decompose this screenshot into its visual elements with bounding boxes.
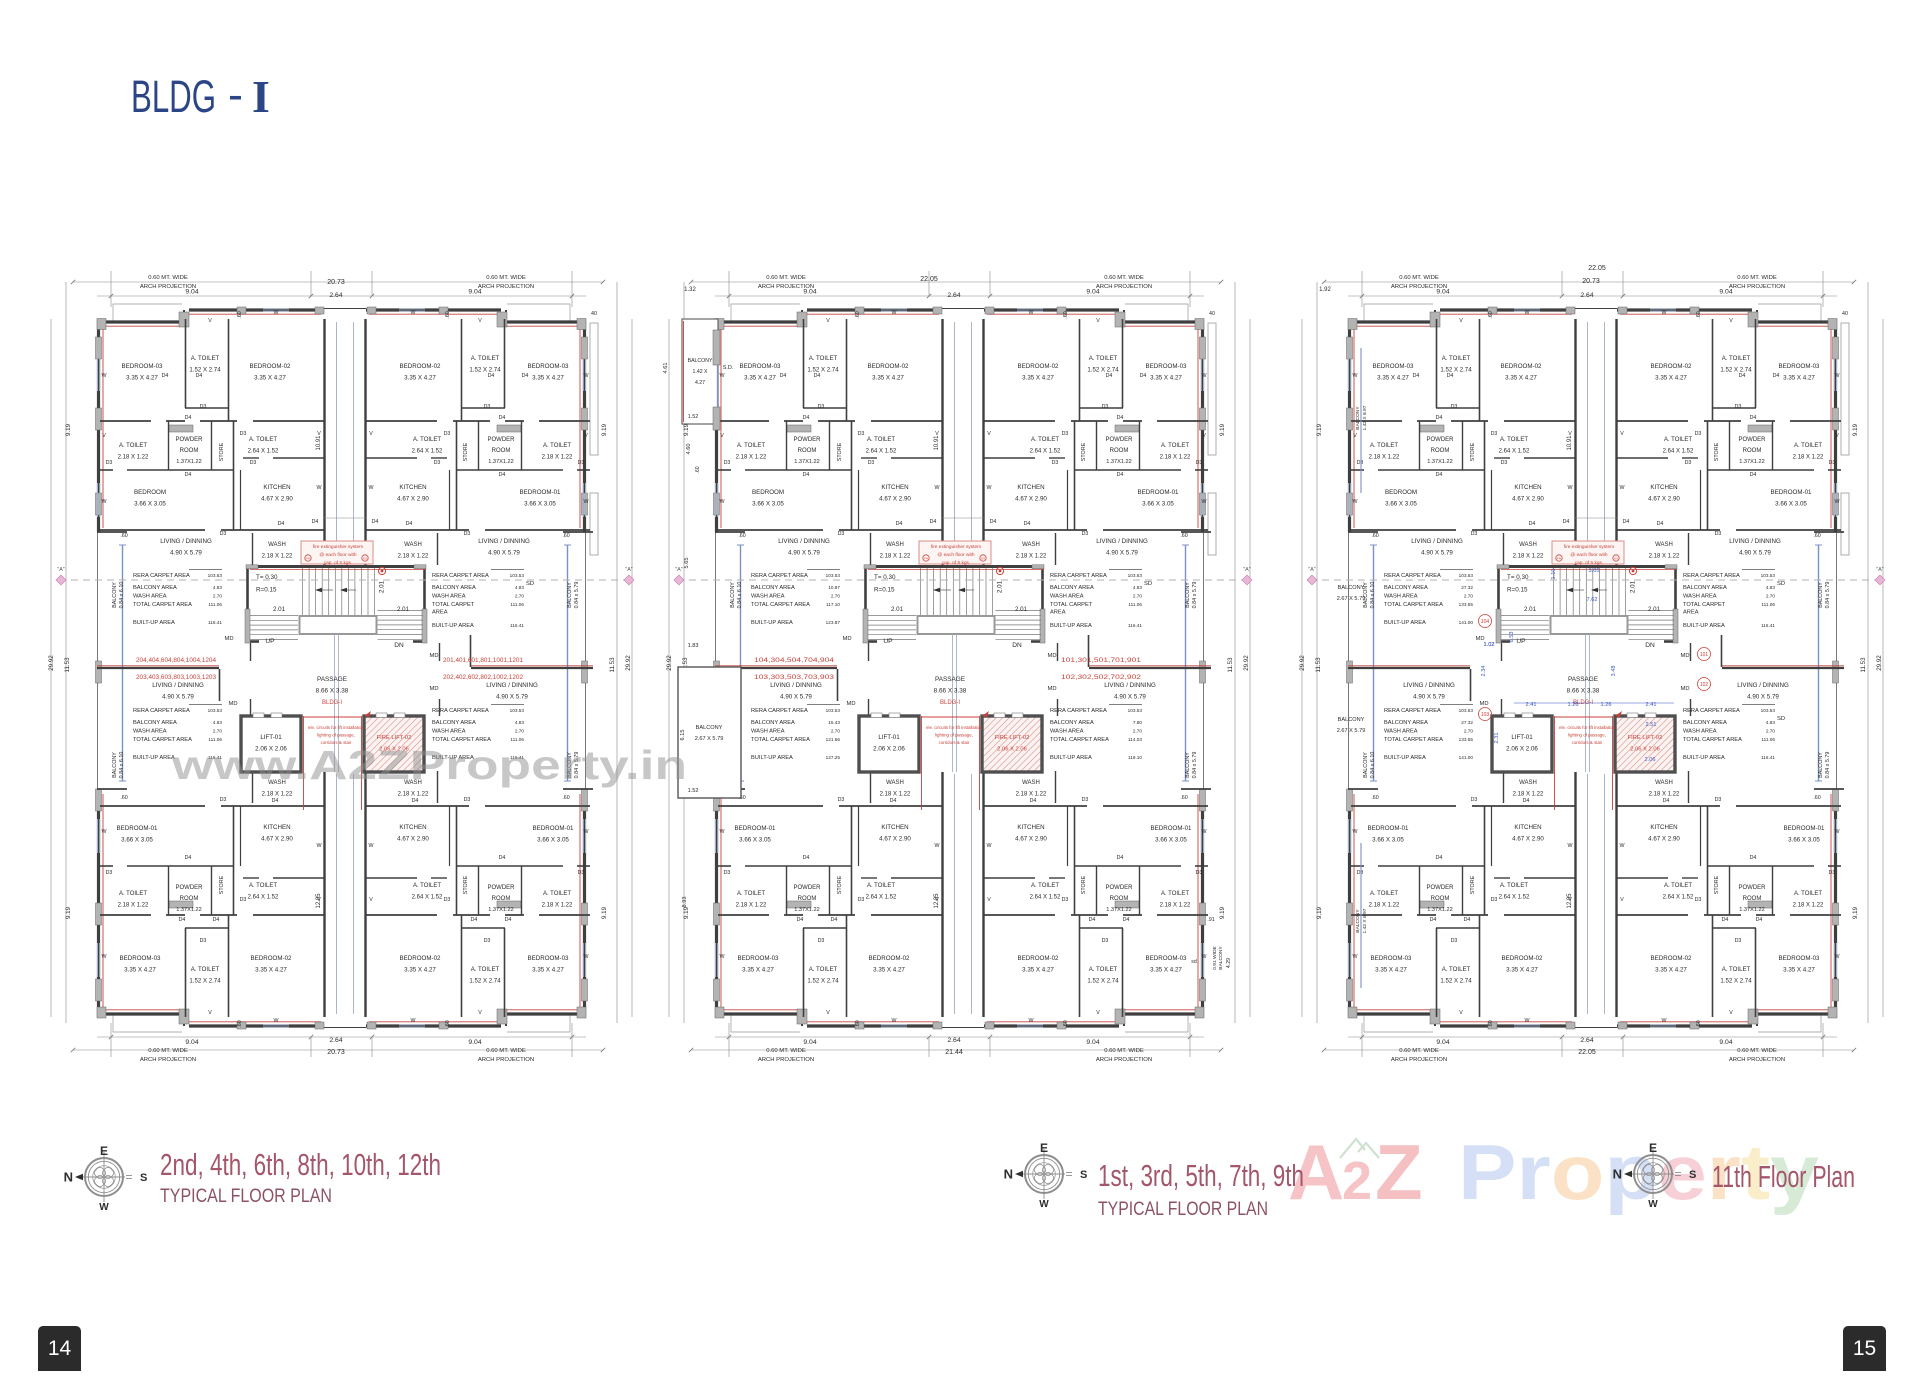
svg-text:S.D.: S.D. [723, 365, 733, 371]
svg-text:BALCONY AREA: BALCONY AREA [133, 585, 177, 591]
svg-text:117.10: 117.10 [826, 602, 840, 607]
svg-text:D3: D3 [240, 897, 247, 903]
svg-text:2.70: 2.70 [1133, 594, 1143, 599]
svg-text:BEDROOM-02: BEDROOM-02 [400, 955, 441, 962]
svg-text:D3: D3 [1829, 460, 1836, 466]
svg-text:A. TOILET: A. TOILET [191, 966, 220, 973]
svg-text:ROOM: ROOM [492, 448, 511, 454]
svg-text:LIVING / DINNING: LIVING / DINNING [1403, 682, 1455, 689]
svg-text:116.41: 116.41 [208, 620, 222, 625]
svg-text:GS: GS [981, 557, 985, 561]
svg-text:1.10: 1.10 [1551, 569, 1557, 580]
svg-text:-: - [228, 69, 243, 120]
svg-text:WASH AREA: WASH AREA [432, 594, 466, 600]
svg-text:ARCH PROJECTION: ARCH PROJECTION [758, 1057, 814, 1063]
svg-text:2.18 X 1.22: 2.18 X 1.22 [736, 455, 767, 461]
svg-text:2.67 X 5.79: 2.67 X 5.79 [695, 736, 724, 742]
svg-text:D3: D3 [1451, 404, 1458, 410]
svg-text:D3: D3 [838, 531, 845, 537]
svg-text:W: W [584, 499, 589, 505]
svg-text:2.06 X 2.06: 2.06 X 2.06 [1630, 747, 1660, 753]
svg-text:V: V [478, 1010, 482, 1016]
svg-text:KITCHEN: KITCHEN [1017, 484, 1044, 491]
svg-text:D3: D3 [200, 404, 207, 410]
svg-text:POWDER: POWDER [794, 437, 822, 443]
svg-text:A. TOILET: A. TOILET [1031, 883, 1059, 889]
svg-text:A. TOILET: A. TOILET [249, 437, 277, 443]
svg-text:3.35 X 4.27: 3.35 X 4.27 [873, 967, 905, 974]
svg-text:0.60 MT. WIDE: 0.60 MT. WIDE [1737, 275, 1777, 281]
svg-text:"A": "A" [625, 567, 632, 573]
svg-text:BEDROOM: BEDROOM [1385, 489, 1417, 496]
svg-text:4.60: 4.60 [686, 444, 692, 455]
svg-text:0.60 MT. WIDE: 0.60 MT. WIDE [148, 1048, 188, 1054]
svg-text:W: W [720, 499, 725, 505]
svg-text:4.90 X 5.79: 4.90 X 5.79 [170, 550, 202, 557]
svg-text:ROOM: ROOM [180, 448, 199, 454]
svg-text:POWDER: POWDER [1739, 437, 1767, 443]
svg-text:2.64 X 1.52: 2.64 X 1.52 [1030, 895, 1061, 901]
svg-text:22.05: 22.05 [920, 276, 938, 283]
svg-text:BLDG-I: BLDG-I [322, 700, 342, 706]
svg-text:A. TOILET: A. TOILET [191, 355, 220, 362]
svg-text:W: W [1620, 843, 1625, 849]
svg-text:W: W [720, 829, 725, 835]
svg-text:A. TOILET: A. TOILET [543, 443, 571, 449]
svg-text:3.35 X 4.27: 3.35 X 4.27 [1506, 967, 1538, 974]
svg-text:1.37X1.22: 1.37X1.22 [488, 459, 514, 465]
svg-text:9.04: 9.04 [1436, 289, 1449, 296]
svg-text:2.64 X 1.52: 2.64 X 1.52 [248, 449, 279, 455]
svg-text:1st, 3rd, 5th, 7th, 9th: 1st, 3rd, 5th, 7th, 9th [1098, 1158, 1304, 1193]
svg-text:TOTAL CARPET: TOTAL CARPET [432, 602, 475, 608]
svg-text:V: V [1568, 897, 1572, 903]
svg-text:1.37X1.22: 1.37X1.22 [176, 459, 202, 465]
svg-text:3.35 X 4.27: 3.35 X 4.27 [1783, 375, 1815, 382]
svg-text:2.70: 2.70 [1133, 729, 1143, 734]
svg-text:WASH AREA: WASH AREA [1683, 729, 1717, 735]
svg-text:SD: SD [1777, 581, 1785, 587]
svg-text:.60: .60 [1813, 533, 1820, 539]
svg-text:WASH: WASH [1655, 542, 1673, 548]
svg-text:W: W [274, 1018, 279, 1024]
svg-text:BEDROOM-02: BEDROOM-02 [869, 955, 910, 962]
svg-text:A. TOILET: A. TOILET [1794, 443, 1822, 449]
svg-text:.60: .60 [1063, 1020, 1069, 1027]
svg-text:STORE: STORE [837, 442, 843, 461]
svg-text:4.67 X 2.90: 4.67 X 2.90 [1015, 836, 1047, 843]
svg-text:.60: .60 [695, 466, 701, 473]
svg-text:BALCONY: BALCONY [567, 582, 573, 608]
svg-text:D4: D4 [1413, 373, 1420, 379]
svg-text:D4: D4 [278, 521, 285, 527]
svg-text:BEDROOM-01: BEDROOM-01 [1151, 825, 1192, 832]
svg-text:2.18 X 1.22: 2.18 X 1.22 [118, 903, 149, 909]
svg-text:D4: D4 [1024, 521, 1031, 527]
svg-text:BALCONY AREA: BALCONY AREA [432, 720, 476, 726]
svg-text:N: N [1613, 1167, 1622, 1182]
svg-text:W: W [317, 485, 322, 491]
svg-text:POWDER: POWDER [794, 885, 822, 891]
svg-text:ele. circuits for lift install: ele. circuits for lift installation [1559, 725, 1615, 730]
svg-text:2.64 X 1.52: 2.64 X 1.52 [1499, 895, 1530, 901]
svg-text:WASH: WASH [886, 542, 904, 548]
svg-text:2.18 X 1.22: 2.18 X 1.22 [262, 554, 293, 560]
svg-text:.60: .60 [1371, 533, 1378, 539]
svg-text:D3: D3 [220, 531, 227, 537]
svg-text:3.35 X 4.27: 3.35 X 4.27 [404, 967, 436, 974]
svg-text:BUILT-UP AREA: BUILT-UP AREA [751, 620, 793, 626]
svg-text:111.06: 111.06 [1761, 602, 1775, 607]
svg-text:1.37X1.22: 1.37X1.22 [1739, 459, 1765, 465]
svg-text:BALCONY: BALCONY [696, 725, 723, 731]
svg-text:2.64: 2.64 [329, 1037, 342, 1044]
svg-text:3.35 X 4.27: 3.35 X 4.27 [254, 375, 286, 382]
svg-text:BEDROOM-03: BEDROOM-03 [1373, 363, 1414, 370]
svg-text:D3: D3 [1491, 431, 1498, 437]
svg-text:3.66 X 3.05: 3.66 X 3.05 [537, 837, 569, 844]
svg-text:BUILT-UP AREA: BUILT-UP AREA [1050, 755, 1092, 761]
svg-text:V: V [935, 897, 939, 903]
svg-text:116.41: 116.41 [510, 623, 524, 628]
svg-text:D4: D4 [162, 373, 169, 379]
svg-text:D3: D3 [1062, 431, 1069, 437]
svg-text:STORE: STORE [1470, 875, 1476, 894]
svg-text:9.04: 9.04 [803, 289, 816, 296]
svg-text:D4: D4 [312, 519, 319, 525]
svg-text:BEDROOM-03: BEDROOM-03 [120, 955, 161, 962]
svg-text:LIFT-01: LIFT-01 [878, 734, 900, 741]
svg-text:9.19: 9.19 [601, 906, 608, 919]
svg-text:4.83: 4.83 [1766, 720, 1776, 725]
svg-text:114.03: 114.03 [1128, 737, 1142, 742]
svg-text:LIVING / DINNING: LIVING / DINNING [478, 538, 530, 545]
svg-text:0.60 MT. WIDE: 0.60 MT. WIDE [486, 1048, 526, 1054]
svg-text:2.18 X 1.22: 2.18 X 1.22 [1513, 554, 1544, 560]
svg-text:103.53: 103.53 [1459, 708, 1474, 713]
svg-text:D3: D3 [1715, 797, 1722, 803]
svg-text:1.42 X 8.97: 1.42 X 8.97 [1362, 405, 1368, 430]
svg-text:2nd, 4th, 6th, 8th, 10th, 12th: 2nd, 4th, 6th, 8th, 10th, 12th [160, 1147, 441, 1182]
svg-text:D3: D3 [578, 870, 585, 876]
svg-text:9.19: 9.19 [1219, 423, 1226, 436]
svg-text:D4: D4 [406, 521, 413, 527]
svg-text:D4: D4 [213, 917, 220, 923]
svg-text:D4: D4 [1089, 917, 1096, 923]
svg-text:ROOM: ROOM [1431, 896, 1450, 902]
svg-text:W: W [892, 1018, 897, 1024]
svg-text:27.32: 27.32 [1461, 585, 1473, 590]
svg-text:A. TOILET: A. TOILET [1664, 437, 1692, 443]
svg-text:LIFT-01: LIFT-01 [1511, 734, 1533, 741]
svg-text:A. TOILET: A. TOILET [413, 437, 441, 443]
svg-text:D4: D4 [412, 798, 419, 804]
svg-text:2.70: 2.70 [1464, 594, 1474, 599]
svg-text:WASH: WASH [1022, 542, 1040, 548]
svg-text:4.67 X 2.90: 4.67 X 2.90 [261, 496, 293, 503]
svg-text:20.73: 20.73 [327, 1049, 345, 1056]
svg-text:9.04: 9.04 [1719, 289, 1732, 296]
svg-text:.60: .60 [562, 795, 569, 801]
svg-text:AREA: AREA [1683, 610, 1699, 616]
svg-text:D4: D4 [1663, 798, 1670, 804]
svg-text:3.35 X 4.27: 3.35 X 4.27 [1505, 375, 1537, 382]
svg-text:MD: MD [1047, 653, 1056, 659]
svg-text:1.52 X 2.74: 1.52 X 2.74 [189, 978, 221, 985]
svg-text:2.18 X 1.22: 2.18 X 1.22 [1649, 792, 1680, 798]
svg-text:S: S [1080, 1169, 1087, 1181]
svg-text:4.61: 4.61 [663, 363, 669, 374]
svg-text:133.55: 133.55 [1459, 737, 1474, 742]
svg-text:203,403,603,803,1003,1203: 203,403,603,803,1003,1203 [136, 674, 217, 681]
svg-text:BALCONY AREA: BALCONY AREA [133, 720, 177, 726]
svg-text:V: V [317, 431, 321, 437]
svg-text:4.90 X 5.79: 4.90 X 5.79 [780, 694, 812, 701]
svg-text:2.01: 2.01 [1524, 606, 1537, 613]
svg-text:BALCONY: BALCONY [1355, 909, 1361, 933]
svg-text:"A": "A" [1308, 567, 1315, 573]
svg-text:103: 103 [1481, 712, 1490, 718]
svg-text:W: W [369, 485, 374, 491]
svg-text:29.92: 29.92 [1299, 655, 1306, 671]
svg-text:141.00: 141.00 [1459, 755, 1474, 760]
svg-text:2.18 X 1.22: 2.18 X 1.22 [1793, 455, 1824, 461]
svg-text:V: V [1096, 318, 1100, 324]
svg-text:W: W [584, 829, 589, 835]
svg-text:1.02: 1.02 [1484, 642, 1495, 648]
svg-text:LIVING / DINNING: LIVING / DINNING [770, 682, 822, 689]
svg-text:D3: D3 [1715, 531, 1722, 537]
svg-text:R=0.15: R=0.15 [256, 587, 277, 594]
svg-text:WASH AREA: WASH AREA [1683, 594, 1717, 600]
svg-text:W: W [1202, 373, 1207, 379]
svg-text:W: W [1202, 829, 1207, 835]
svg-text:2.64: 2.64 [1580, 1037, 1593, 1044]
svg-text:2.18 X 1.22: 2.18 X 1.22 [1369, 455, 1400, 461]
svg-text:D4: D4 [1523, 798, 1530, 804]
svg-text:A. TOILET: A. TOILET [1722, 966, 1751, 973]
svg-text:STORE: STORE [463, 875, 469, 894]
svg-text:W: W [584, 954, 589, 960]
svg-text:2.64: 2.64 [329, 292, 342, 299]
svg-text:8.66 X 3.38: 8.66 X 3.38 [1567, 688, 1600, 695]
svg-text:11.53: 11.53 [64, 657, 71, 673]
svg-text:D3: D3 [818, 404, 825, 410]
svg-text:E: E [1040, 1141, 1048, 1155]
svg-text:D3: D3 [1102, 938, 1109, 944]
svg-text:3.05: 3.05 [1589, 568, 1600, 574]
svg-text:W: W [892, 310, 897, 316]
svg-text:S: S [140, 1172, 147, 1184]
svg-text:1.52: 1.52 [688, 414, 699, 420]
svg-text:2.18 X 1.22: 2.18 X 1.22 [398, 554, 429, 560]
svg-text:DN: DN [1012, 642, 1022, 649]
svg-text:103.53: 103.53 [208, 573, 223, 578]
svg-text:1.52 X 2.74: 1.52 X 2.74 [469, 978, 501, 985]
svg-text:2.70: 2.70 [1766, 729, 1776, 734]
svg-text:V: V [584, 433, 588, 439]
svg-text:ROOM: ROOM [798, 896, 817, 902]
svg-text:W: W [1568, 843, 1573, 849]
svg-text:0.84 x 6.10: 0.84 x 6.10 [1370, 752, 1376, 779]
svg-text:.60: .60 [1813, 795, 1820, 801]
svg-text:2.18 X 1.22: 2.18 X 1.22 [118, 455, 149, 461]
svg-text:A. TOILET: A. TOILET [413, 883, 441, 889]
svg-text:201,401,601,801,1001,1201: 201,401,601,801,1001,1201 [443, 657, 524, 664]
svg-text:3.35 X 4.27: 3.35 X 4.27 [744, 375, 776, 382]
svg-text:D4: D4 [814, 373, 821, 379]
svg-text:.60: .60 [445, 1020, 451, 1027]
svg-text:3.35 X 4.27: 3.35 X 4.27 [1022, 967, 1054, 974]
svg-text:BUILT-UP AREA: BUILT-UP AREA [751, 755, 793, 761]
svg-text:PASSAGE: PASSAGE [1568, 676, 1598, 683]
svg-text:KITCHEN: KITCHEN [263, 484, 290, 491]
svg-text:S: S [1689, 1169, 1696, 1181]
svg-text:D4: D4 [1464, 917, 1471, 923]
svg-text:29.92: 29.92 [1243, 655, 1250, 671]
svg-text:.91: .91 [1207, 917, 1214, 923]
svg-text:fire extinguisher system: fire extinguisher system [931, 544, 981, 550]
svg-text:BALCONY: BALCONY [1363, 752, 1369, 778]
svg-text:@ each floor with: @ each floor with [1570, 552, 1607, 558]
svg-text:4.67 X 2.90: 4.67 X 2.90 [879, 836, 911, 843]
svg-text:A. TOILET: A. TOILET [1794, 891, 1822, 897]
svg-text:21.44: 21.44 [945, 1049, 963, 1056]
svg-text:.60: .60 [1180, 533, 1187, 539]
svg-text:111.06: 111.06 [1128, 602, 1142, 607]
svg-text:14: 14 [48, 1337, 72, 1360]
svg-text:KITCHEN: KITCHEN [1017, 824, 1044, 831]
svg-text:WASH: WASH [268, 542, 286, 548]
svg-text:W: W [411, 310, 416, 316]
svg-text:BEDROOM-02: BEDROOM-02 [250, 363, 291, 370]
svg-text:A. TOILET: A. TOILET [1500, 883, 1528, 889]
svg-text:W: W [102, 954, 107, 960]
svg-text:1.37X1.22: 1.37X1.22 [1739, 907, 1765, 913]
svg-text:204,404,604,804,1004,1204: 204,404,604,804,1004,1204 [136, 657, 217, 664]
svg-text:D3: D3 [1695, 897, 1702, 903]
svg-text:0.84 x 5.79: 0.84 x 5.79 [1192, 582, 1198, 609]
svg-text:BEDROOM-01: BEDROOM-01 [117, 825, 158, 832]
svg-text:TOTAL CARPET AREA: TOTAL CARPET AREA [1384, 737, 1443, 743]
svg-text:ARCH PROJECTION: ARCH PROJECTION [1096, 1057, 1152, 1063]
svg-text:V: V [1202, 433, 1206, 439]
svg-text:STORE: STORE [219, 875, 225, 894]
svg-text:BEDROOM-01: BEDROOM-01 [735, 825, 776, 832]
svg-text:4.67 X 2.90: 4.67 X 2.90 [261, 836, 293, 843]
svg-text:2.01: 2.01 [997, 580, 1004, 593]
svg-text:10.91: 10.91 [316, 435, 322, 451]
svg-text:A. TOILET: A. TOILET [867, 437, 895, 443]
svg-text:10.87: 10.87 [828, 585, 840, 590]
svg-text:V: V [1620, 431, 1624, 437]
svg-text:W: W [102, 373, 107, 379]
svg-text:ROOM: ROOM [492, 896, 511, 902]
svg-text:4.90 X 5.79: 4.90 X 5.79 [488, 550, 520, 557]
svg-text:BUILT-UP AREA: BUILT-UP AREA [1050, 623, 1092, 629]
svg-text:D3: D3 [1501, 460, 1508, 466]
svg-text:D4: D4 [1773, 373, 1780, 379]
svg-text:.60: .60 [855, 1020, 861, 1027]
svg-text:9.19: 9.19 [1316, 906, 1323, 919]
svg-text:2.64 X 1.52: 2.64 X 1.52 [1663, 449, 1694, 455]
svg-text:W: W [1568, 485, 1573, 491]
svg-text:BALCONY: BALCONY [1818, 752, 1824, 778]
svg-text:lighting of passage,: lighting of passage, [1568, 733, 1606, 738]
svg-text:BUILT-UP AREA: BUILT-UP AREA [1683, 623, 1725, 629]
svg-text:BEDROOM-02: BEDROOM-02 [1651, 363, 1692, 370]
svg-text:.60: .60 [237, 311, 243, 318]
svg-text:2.01: 2.01 [1015, 606, 1028, 613]
svg-text:BALCONY AREA: BALCONY AREA [751, 720, 795, 726]
svg-text:ele. circuits for lift install: ele. circuits for lift installation [926, 725, 982, 730]
svg-text:W: W [935, 843, 940, 849]
svg-text:ROOM: ROOM [798, 448, 817, 454]
svg-text:W: W [1835, 829, 1840, 835]
svg-text:W: W [987, 843, 992, 849]
svg-text:D3: D3 [464, 797, 471, 803]
svg-text:D3: D3 [444, 431, 451, 437]
svg-text:W: W [1353, 499, 1358, 505]
svg-text:D4: D4 [1436, 472, 1443, 478]
svg-text:A. TOILET: A. TOILET [1442, 966, 1471, 973]
svg-text:141.00: 141.00 [1459, 620, 1474, 625]
svg-text:FIRE LIFT-02: FIRE LIFT-02 [995, 735, 1030, 741]
svg-text:4.67 X 2.90: 4.67 X 2.90 [879, 496, 911, 503]
svg-text:N: N [1004, 1167, 1013, 1182]
svg-text:D4: D4 [185, 472, 192, 478]
svg-text:TOTAL CARPET AREA: TOTAL CARPET AREA [751, 602, 810, 608]
svg-text:1.52: 1.52 [688, 788, 699, 794]
svg-text:STORE: STORE [463, 442, 469, 461]
svg-text:40: 40 [1842, 311, 1848, 317]
svg-text:W: W [1835, 954, 1840, 960]
svg-text:LIFT-01: LIFT-01 [260, 734, 282, 741]
svg-text:V: V [720, 433, 724, 439]
svg-text:0.84 x 6.10: 0.84 x 6.10 [119, 752, 125, 779]
svg-text:D4: D4 [522, 373, 529, 379]
svg-text:POWDER: POWDER [1106, 885, 1134, 891]
svg-text:1.37X1.22: 1.37X1.22 [1427, 907, 1453, 913]
svg-text:D3: D3 [484, 404, 491, 410]
svg-text:RERA CARPET AREA: RERA CARPET AREA [1050, 573, 1107, 579]
svg-text:104,304,504,704,904: 104,304,504,704,904 [754, 657, 835, 664]
svg-text:D4: D4 [803, 472, 810, 478]
svg-text:2.01: 2.01 [1630, 580, 1637, 593]
svg-text:D4: D4 [1739, 373, 1746, 379]
svg-text:V: V [369, 431, 373, 437]
svg-text:D3: D3 [1735, 404, 1742, 410]
svg-text:D4: D4 [990, 519, 997, 525]
svg-text:.60: .60 [562, 533, 569, 539]
svg-text:TOTAL CARPET AREA: TOTAL CARPET AREA [751, 737, 810, 743]
svg-text:RERA CARPET AREA: RERA CARPET AREA [1683, 573, 1740, 579]
svg-text:POWDER: POWDER [1739, 885, 1767, 891]
svg-text:"A": "A" [675, 567, 682, 573]
svg-text:2.06: 2.06 [1645, 757, 1656, 763]
svg-text:102,302,502,702,902: 102,302,502,702,902 [1061, 674, 1142, 681]
svg-text:D4: D4 [272, 798, 279, 804]
svg-text:103.53: 103.53 [1761, 573, 1776, 578]
svg-text:POWDER: POWDER [1427, 885, 1455, 891]
svg-text:POWDER: POWDER [488, 885, 516, 891]
svg-text:.60: .60 [1180, 795, 1187, 801]
svg-text:1.37X1.22: 1.37X1.22 [488, 907, 514, 913]
svg-text:3.35 X 4.27: 3.35 X 4.27 [532, 967, 564, 974]
svg-text:Z: Z [1375, 1128, 1423, 1216]
svg-text:D4: D4 [499, 472, 506, 478]
svg-text:2.64 X 1.52: 2.64 X 1.52 [866, 895, 897, 901]
